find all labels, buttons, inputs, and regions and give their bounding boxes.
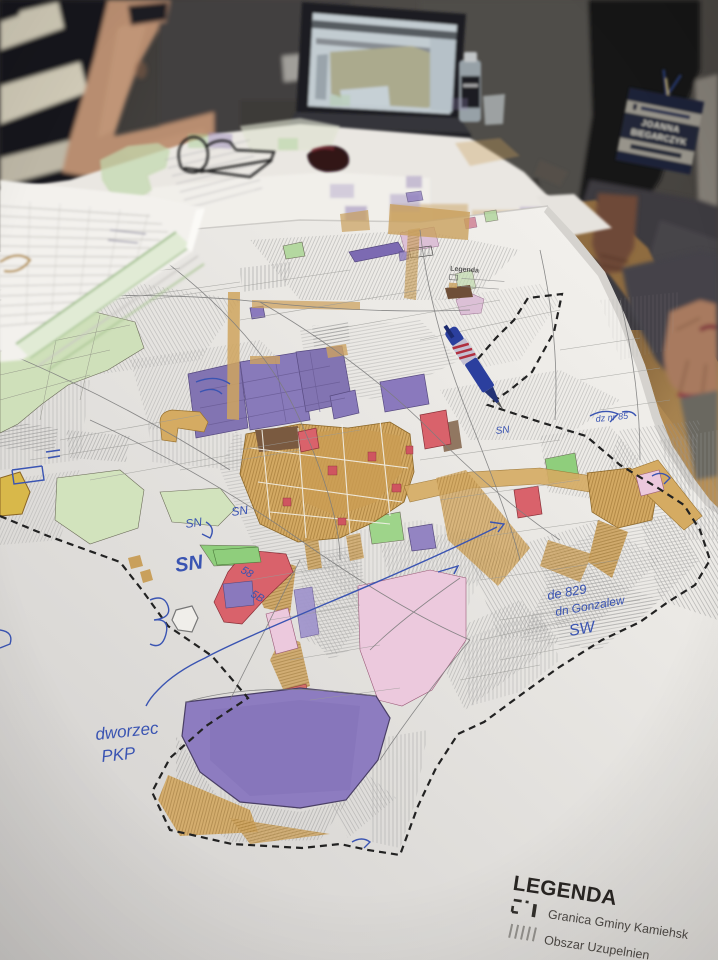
svg-text:PKP: PKP [100, 743, 136, 766]
svg-text:SN: SN [495, 425, 511, 437]
svg-text:SN: SN [184, 515, 203, 531]
svg-text:SN: SN [230, 503, 249, 519]
svg-text:SN: SN [174, 551, 205, 577]
